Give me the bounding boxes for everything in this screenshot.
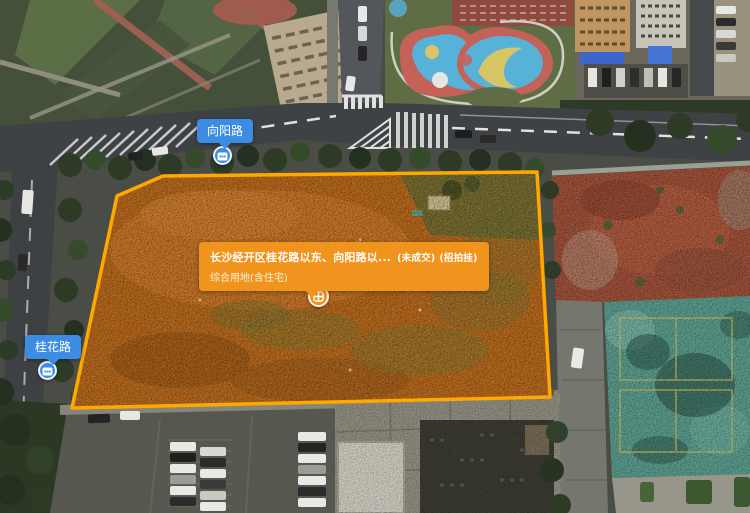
map-canvas[interactable]: 向阳路 桂花路 长沙经开区桂花路以东、向阳路以...(未成交)(招拍挂) 综合用… — [0, 0, 750, 513]
road-label-guihua-text: 桂花路 — [35, 340, 71, 354]
parcel-status: (未成交) — [397, 253, 435, 264]
parcel-title: 长沙经开区桂花路以东、向阳路以... — [210, 251, 391, 264]
parcel-land-use: 综合用地(含住宅) — [210, 269, 478, 284]
parcel-listing-type: (招拍挂) — [439, 253, 477, 264]
parcel-tooltip-line1: 长沙经开区桂花路以东、向阳路以...(未成交)(招拍挂) — [210, 249, 478, 265]
road-label-xiangyang[interactable]: 向阳路 — [197, 119, 253, 143]
road-label-xiangyang-text: 向阳路 — [207, 124, 243, 138]
parcel-tooltip[interactable]: 长沙经开区桂花路以东、向阳路以...(未成交)(招拍挂) 综合用地(含住宅) — [199, 242, 489, 291]
road-label-guihua[interactable]: 桂花路 — [25, 335, 81, 359]
